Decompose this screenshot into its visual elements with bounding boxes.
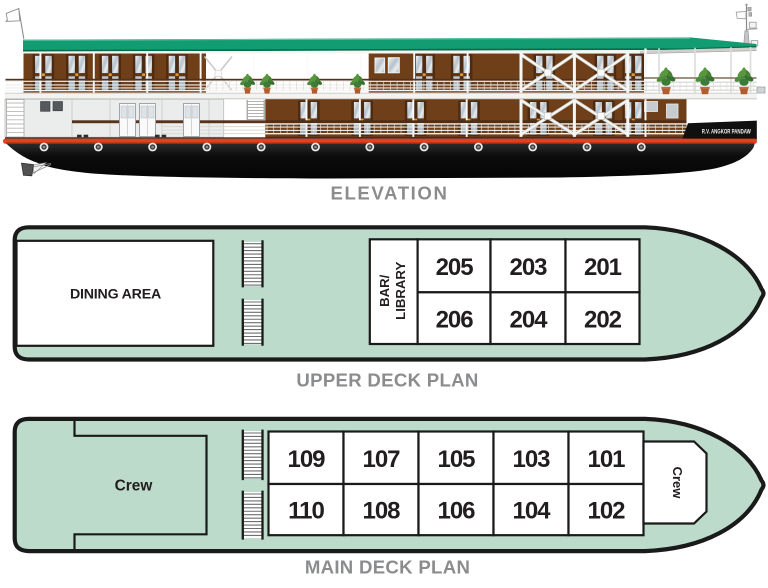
svg-text:101: 101: [587, 446, 625, 473]
svg-text:107: 107: [362, 446, 400, 473]
svg-text:109: 109: [287, 446, 325, 473]
svg-text:Crew: Crew: [115, 477, 153, 494]
svg-text:MAIN DECK PLAN: MAIN DECK PLAN: [305, 557, 470, 578]
svg-text:205: 205: [436, 254, 474, 281]
svg-text:108: 108: [362, 498, 400, 525]
svg-text:UPPER DECK PLAN: UPPER DECK PLAN: [296, 370, 478, 391]
svg-text:203: 203: [509, 254, 547, 281]
svg-text:ELEVATION: ELEVATION: [330, 183, 448, 204]
svg-text:R.V. ANGKOR PANDAW: R.V. ANGKOR PANDAW: [702, 129, 751, 136]
svg-text:110: 110: [288, 498, 324, 525]
svg-text:102: 102: [587, 498, 625, 525]
svg-text:201: 201: [584, 254, 622, 281]
svg-text:106: 106: [437, 498, 475, 525]
svg-text:202: 202: [584, 306, 622, 333]
svg-text:206: 206: [436, 306, 474, 333]
svg-text:104: 104: [512, 498, 551, 525]
svg-text:204: 204: [509, 306, 548, 333]
svg-text:Crew: Crew: [670, 467, 685, 500]
svg-text:103: 103: [512, 446, 550, 473]
svg-text:DINING AREA: DINING AREA: [70, 287, 161, 303]
svg-text:105: 105: [437, 446, 475, 473]
